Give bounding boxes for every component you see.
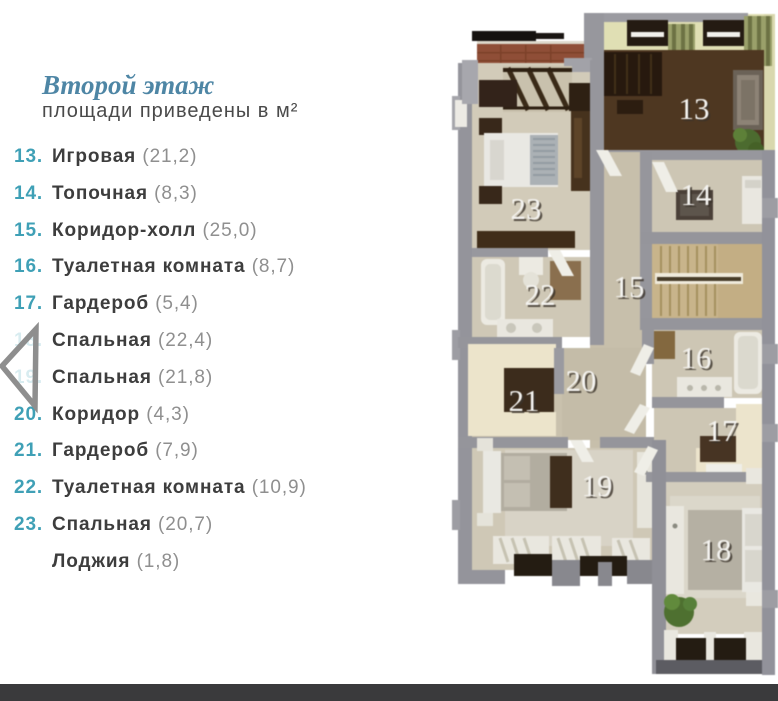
svg-text:14: 14 <box>681 177 713 212</box>
svg-text:21: 21 <box>509 383 540 418</box>
svg-text:16: 16 <box>681 340 712 375</box>
svg-text:19: 19 <box>582 468 613 503</box>
svg-text:22: 22 <box>525 277 556 312</box>
svg-text:20: 20 <box>566 363 597 398</box>
svg-text:17: 17 <box>707 413 738 448</box>
svg-text:15: 15 <box>614 269 645 304</box>
svg-text:13: 13 <box>679 91 710 126</box>
svg-text:18: 18 <box>701 532 732 567</box>
svg-text:23: 23 <box>511 191 542 226</box>
